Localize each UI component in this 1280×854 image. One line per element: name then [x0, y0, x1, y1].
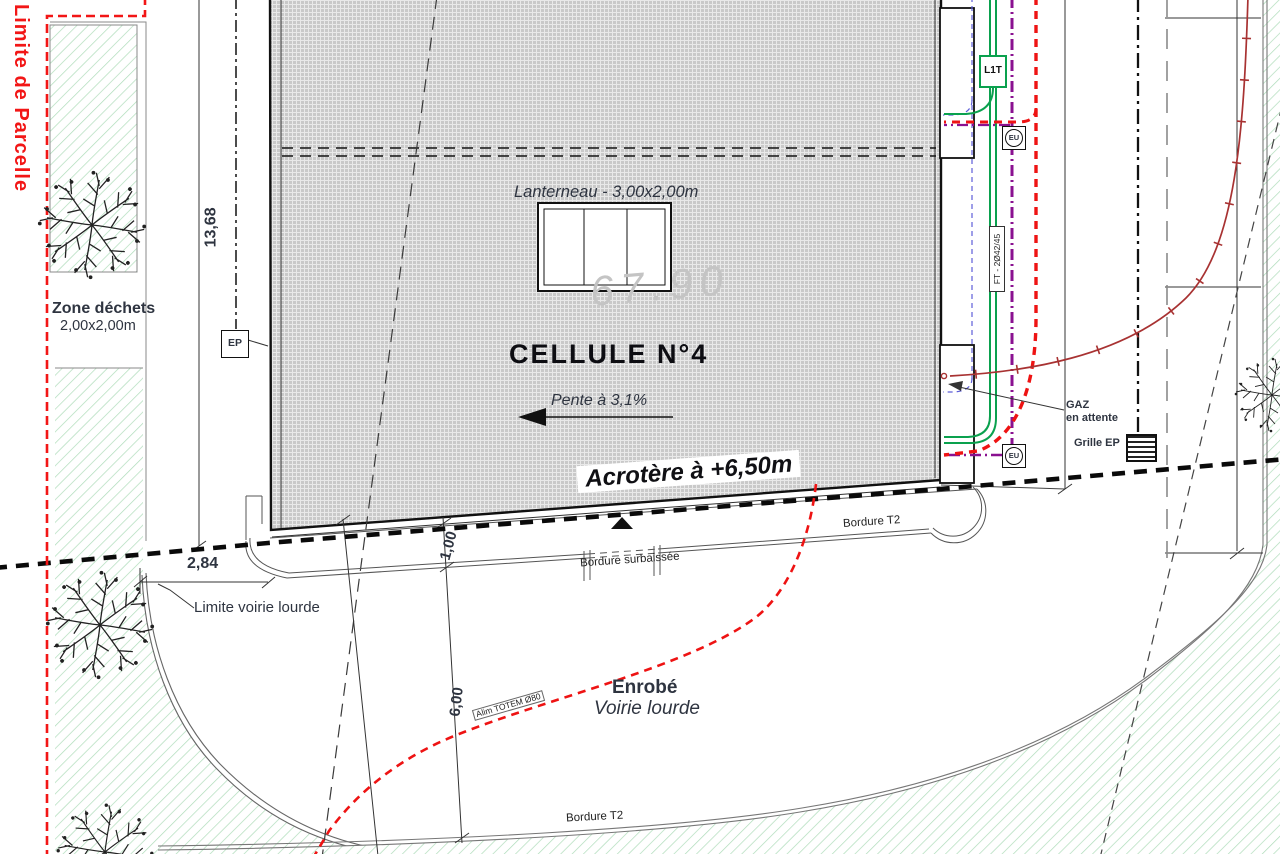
l1t-box: L1T: [979, 55, 1007, 88]
gaz-sublabel: en attente: [1066, 413, 1118, 425]
parcel-limit-label: Limite de Parcelle: [10, 4, 31, 184]
eu-manhole: EU: [1002, 444, 1026, 468]
entrance-arrow: [611, 517, 633, 529]
eu-manhole-label: EU: [1005, 447, 1023, 465]
grille-ep-label: Grille EP: [1074, 438, 1120, 450]
waste-zone-size: 2,00x2,00m: [60, 319, 136, 334]
plan-linework: [0, 0, 1280, 854]
building-name: CELLULE N°4: [509, 340, 708, 368]
door-recess-bottom: [940, 345, 974, 483]
dimension-2-84: 2,84: [187, 556, 218, 573]
totem-feed-line: [313, 484, 816, 854]
eu-manhole: EU: [1002, 126, 1026, 150]
ep-box: EP: [221, 330, 249, 358]
skylight-label: Lanterneau - 3,00x2,00m: [514, 184, 698, 201]
grille-ep-icon: [1126, 434, 1157, 462]
site-plan: Limite de Parcelle 13,68 Zone déchets 2,…: [0, 0, 1280, 854]
door-recess-top: [940, 8, 974, 158]
slope-label: Pente à 3,1%: [551, 393, 647, 410]
heavy-road-limit-label: Limite voirie lourde: [194, 600, 320, 616]
waste-zone-label: Zone déchets: [52, 301, 155, 318]
road-type-label: Voirie lourde: [594, 699, 700, 719]
eu-manhole-label: EU: [1005, 129, 1023, 147]
dimension-13-68: 13,68: [204, 201, 221, 253]
ft-duct-label: FT - 2Ø42/45: [989, 226, 1005, 292]
gaz-label: GAZ: [1066, 400, 1089, 412]
surface-label: Enrobé: [612, 678, 677, 698]
